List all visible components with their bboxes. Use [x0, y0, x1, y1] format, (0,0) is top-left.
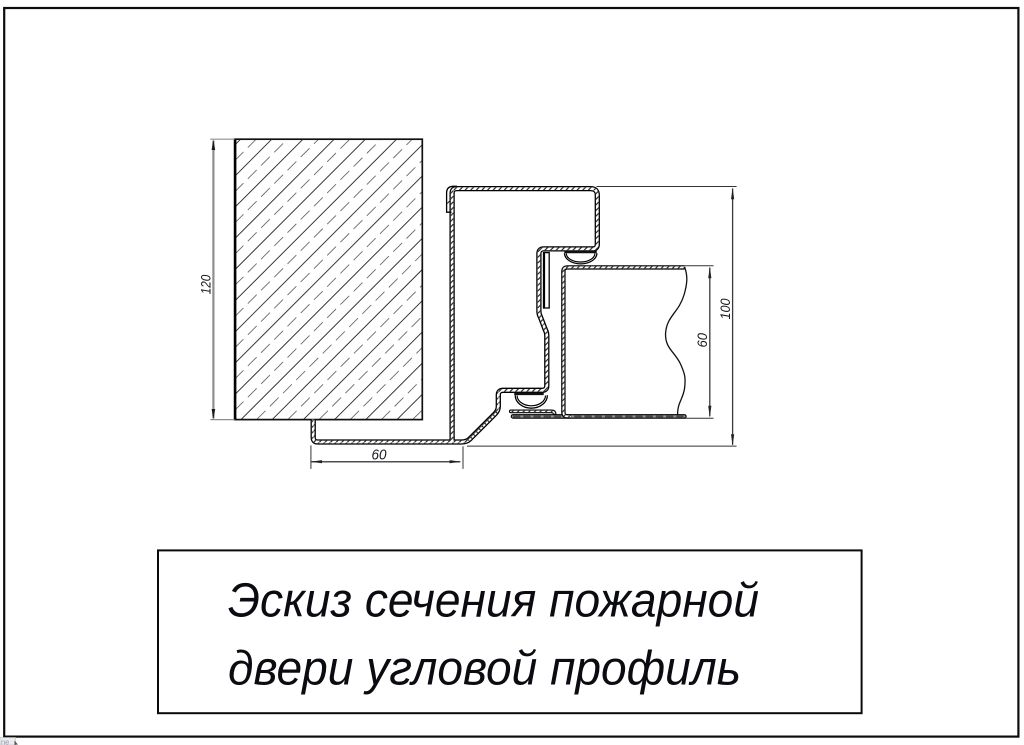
svg-text:двери угловой профиль: двери угловой профиль [228, 643, 741, 696]
svg-text:120: 120 [198, 275, 214, 295]
svg-text:Эскиз сечения пожарной: Эскиз сечения пожарной [228, 575, 759, 628]
svg-text:60: 60 [694, 333, 710, 348]
svg-text:100: 100 [717, 298, 733, 319]
svg-text:ne: ne [1, 738, 9, 745]
svg-text:60: 60 [372, 447, 387, 463]
